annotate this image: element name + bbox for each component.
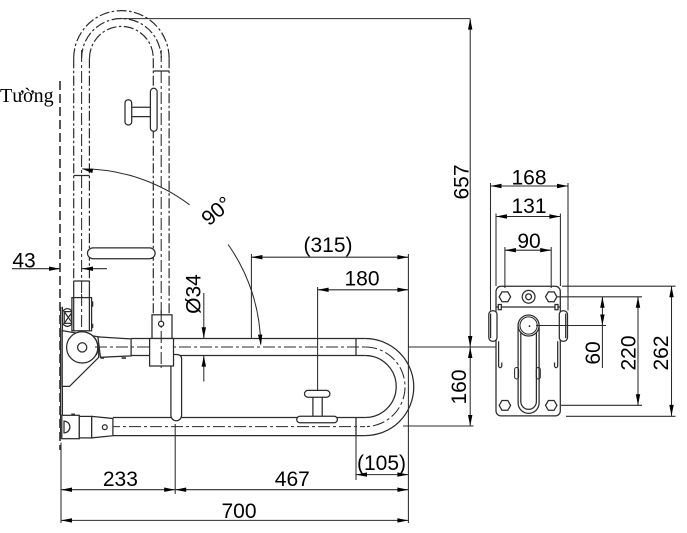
svg-text:467: 467 [275, 468, 310, 491]
svg-text:131: 131 [511, 195, 546, 218]
svg-text:60: 60 [582, 341, 605, 364]
svg-text:700: 700 [221, 500, 256, 523]
svg-text:657: 657 [450, 164, 473, 199]
svg-text:90: 90 [517, 230, 540, 253]
svg-text:Tường: Tường [0, 85, 54, 107]
svg-text:(105): (105) [357, 452, 406, 475]
svg-text:(315): (315) [303, 234, 352, 257]
svg-text:233: 233 [103, 468, 138, 491]
svg-text:180: 180 [344, 267, 379, 290]
svg-text:160: 160 [448, 369, 471, 404]
svg-text:262: 262 [650, 335, 673, 370]
svg-text:Ø34: Ø34 [183, 274, 206, 314]
svg-text:220: 220 [618, 335, 641, 370]
